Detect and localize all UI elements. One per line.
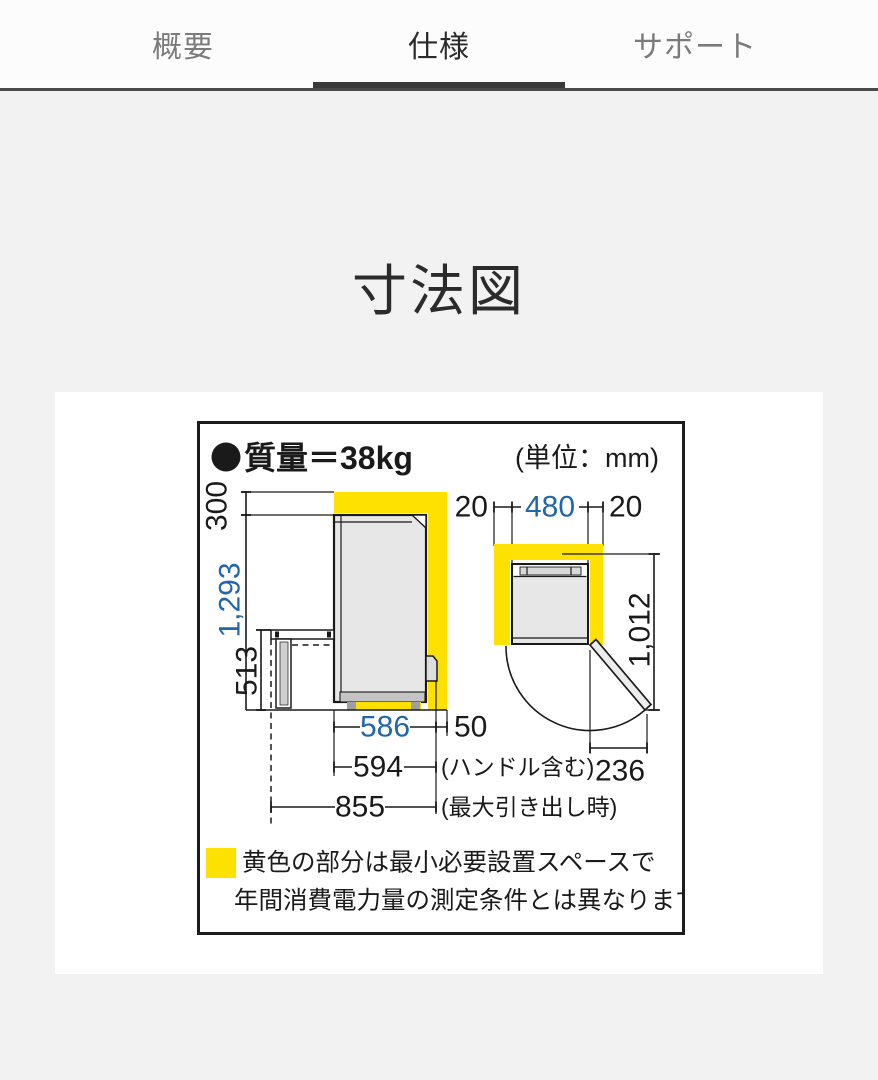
dim-body-height: 1,293 bbox=[214, 562, 247, 637]
fridge-foot bbox=[411, 702, 420, 710]
fridge-side-body bbox=[334, 515, 426, 702]
tab-overview[interactable]: 概要 bbox=[55, 0, 311, 88]
diagram-header: 質量＝38kg (単位：mm) bbox=[212, 440, 660, 476]
under-clearance bbox=[347, 702, 421, 710]
active-tab-underline bbox=[313, 82, 565, 88]
plan-handle-bar bbox=[520, 567, 581, 575]
spec-card: 質量＝38kg (単位：mm) bbox=[55, 392, 823, 974]
legend-line1: 黄色の部分は最小必要設置スペースで bbox=[242, 848, 656, 876]
dim-right-clearance: 20 bbox=[609, 490, 642, 523]
drawer-open bbox=[271, 630, 334, 824]
tab-support-label: サポート bbox=[633, 22, 757, 66]
dim-rear-clearance: 50 bbox=[454, 710, 487, 743]
dim-body-depth: 586 bbox=[360, 710, 410, 743]
weight-label: 質量＝38kg bbox=[244, 440, 413, 476]
note-max-drawer: (最大引き出し時) bbox=[441, 794, 617, 820]
page-title: 寸法図 bbox=[0, 91, 878, 322]
dim-depth-door-open: 1,012 bbox=[624, 592, 657, 667]
dim-depth-incl-handle: 594 bbox=[353, 750, 403, 783]
legend-line2: 年間消費電力量の測定条件とは異なります。 bbox=[234, 886, 682, 914]
tab-specifications[interactable]: 仕様 bbox=[311, 0, 567, 88]
dim-max-drawer-depth: 855 bbox=[335, 790, 385, 823]
bullet-icon bbox=[212, 442, 241, 471]
dimension-diagram-box: 質量＝38kg (単位：mm) bbox=[197, 421, 685, 935]
tab-specifications-label: 仕様 bbox=[408, 22, 470, 66]
dim-drawer-height: 513 bbox=[231, 645, 264, 695]
dim-body-width: 480 bbox=[525, 490, 575, 523]
tab-bar: 概要 仕様 サポート bbox=[0, 0, 878, 91]
dimension-diagram: 質量＝38kg (単位：mm) bbox=[200, 424, 682, 932]
unit-label: (単位：mm) bbox=[515, 443, 659, 473]
tab-support[interactable]: サポート bbox=[567, 0, 823, 88]
note-handle-included: (ハンドル含む) bbox=[441, 754, 594, 780]
dim-top-clearance: 300 bbox=[201, 480, 234, 530]
dim-left-clearance: 20 bbox=[455, 490, 488, 523]
yellow-swatch-icon bbox=[206, 848, 236, 878]
tab-overview-label: 概要 bbox=[152, 22, 214, 66]
legend: 黄色の部分は最小必要設置スペースで 年間消費電力量の測定条件とは異なります。 bbox=[206, 848, 682, 915]
side-view: 300 1,293 513 bbox=[201, 480, 618, 823]
rear-protrusion bbox=[426, 656, 437, 681]
dim-door-open-width: 236 bbox=[595, 754, 645, 787]
fridge-foot bbox=[347, 702, 356, 710]
fridge-base bbox=[340, 692, 425, 702]
